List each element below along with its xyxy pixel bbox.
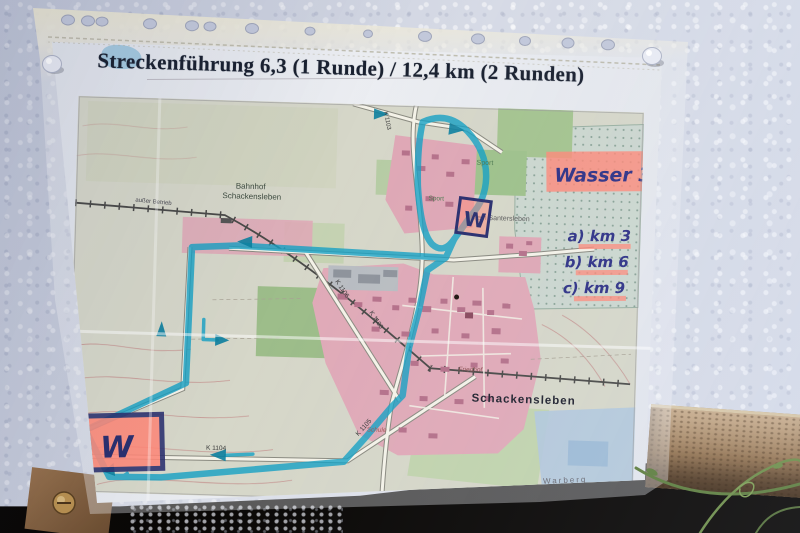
road-label-k1104: K 1104 [206,445,227,453]
km-list: a) km 3 b) km 6 c) km 9 [563,227,632,301]
map-label-schule: Schule [367,426,387,434]
map-label-bahnhof-town: Schackensleben [222,191,281,202]
route-map-page: Streckenführung 6,3 (1 Runde) / 12,4 km … [74,42,668,529]
exclamation-mark: ! [642,209,644,284]
water-note: Wasser 3x [546,151,644,192]
map-label-sport-upper: Sport [476,160,493,167]
water-note-text: Wasser 3x [554,164,644,187]
km-mark-b: b) km 6 [565,253,629,271]
map-label-friedhof: Friedhof [458,366,483,374]
km-mark-a: a) km 3 [568,227,632,245]
water-station-marker-top: W [456,198,491,237]
map-label-sport-lower: Sport [428,195,444,202]
water-station-bottom-label: W [100,430,136,466]
km-mark-c: c) km 9 [563,279,625,297]
map-field-tint [86,101,338,188]
water-station-top-label: W [462,206,487,233]
photo-route-map-poster: Streckenführung 6,3 (1 Runde) / 12,4 km … [0,0,800,533]
map-label-bahnhof: Bahnhof [236,181,267,191]
